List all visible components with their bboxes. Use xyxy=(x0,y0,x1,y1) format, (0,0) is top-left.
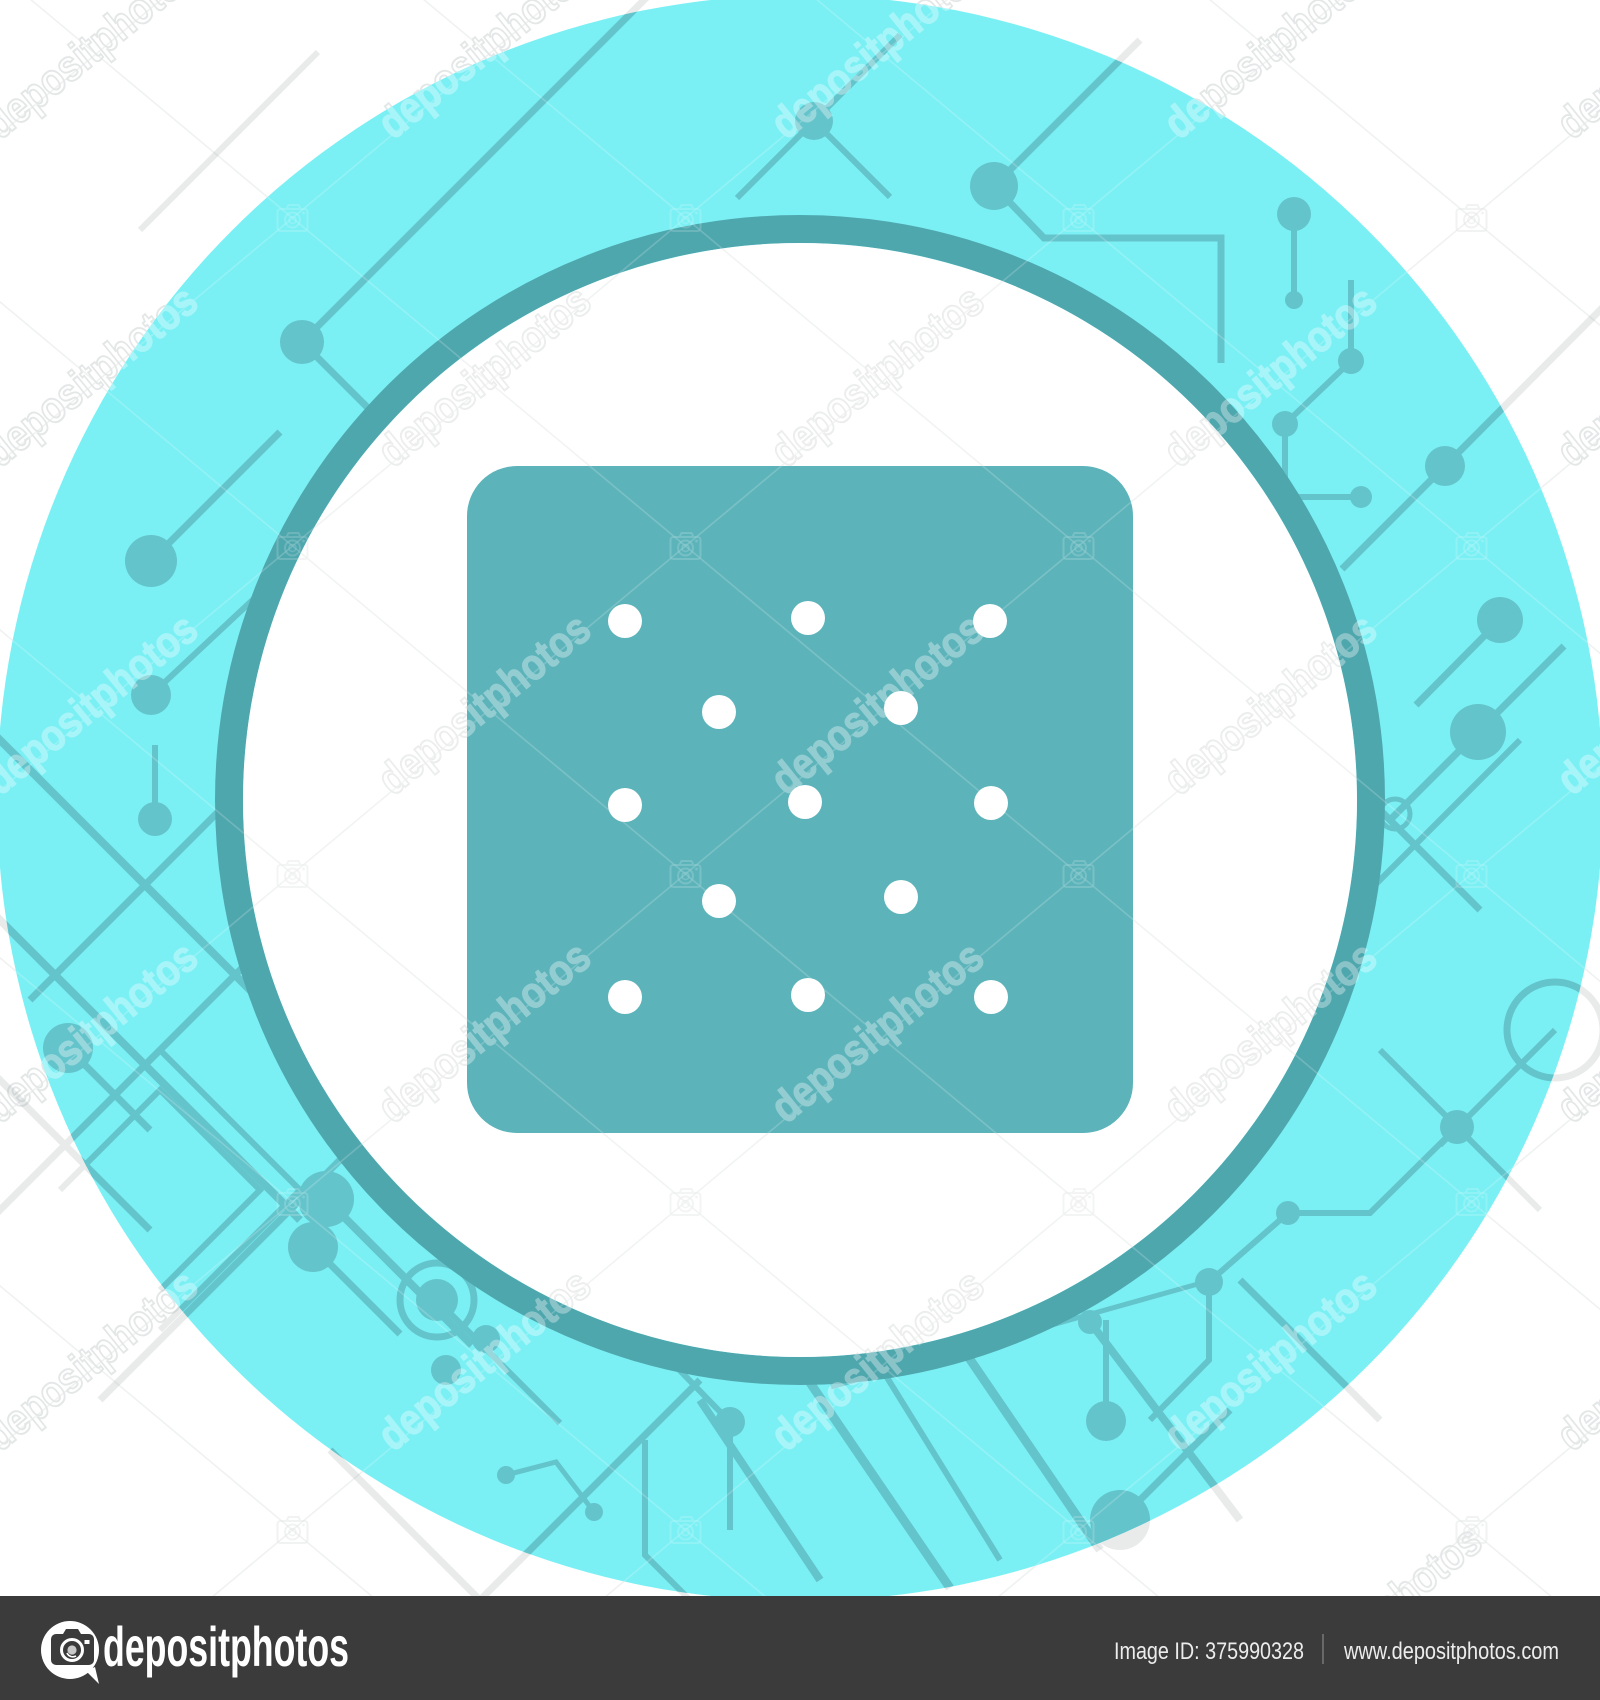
svg-text:Image ID: 375990328: Image ID: 375990328 xyxy=(1114,1638,1304,1665)
svg-text:www.depositphotos.com: www.depositphotos.com xyxy=(1343,1638,1559,1665)
svg-text:depositphotos: depositphotos xyxy=(103,1615,349,1678)
